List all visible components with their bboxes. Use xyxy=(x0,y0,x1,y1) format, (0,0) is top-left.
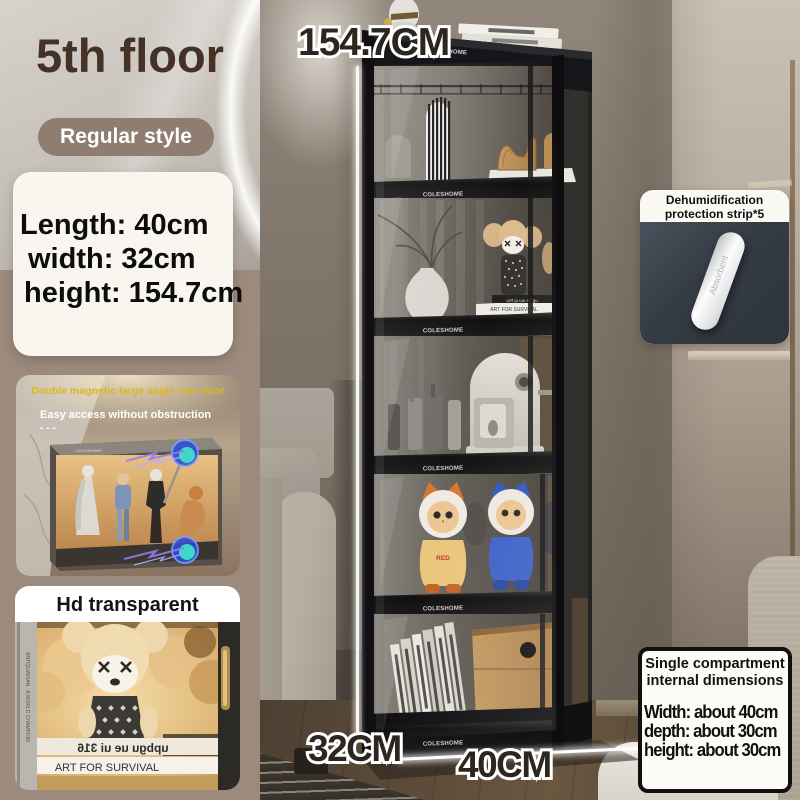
svg-text:Double magnetic large angle si: Double magnetic large angle side door xyxy=(31,385,224,397)
svg-text:upbgu ue ui 316: upbgu ue ui 316 xyxy=(77,741,169,755)
svg-text:COLESHOME: COLESHOME xyxy=(76,448,102,453)
svg-text:ART FOR SURVIVAL: ART FOR SURVIVAL xyxy=(55,762,159,774)
svg-text:- - -: - - - xyxy=(40,423,56,434)
svg-text:ANTIQUARIAN · A WORLD CHAMPION: ANTIQUARIAN · A WORLD CHAMPION xyxy=(24,652,30,742)
svg-text:Easy access without obstructio: Easy access without obstruction xyxy=(40,409,211,421)
